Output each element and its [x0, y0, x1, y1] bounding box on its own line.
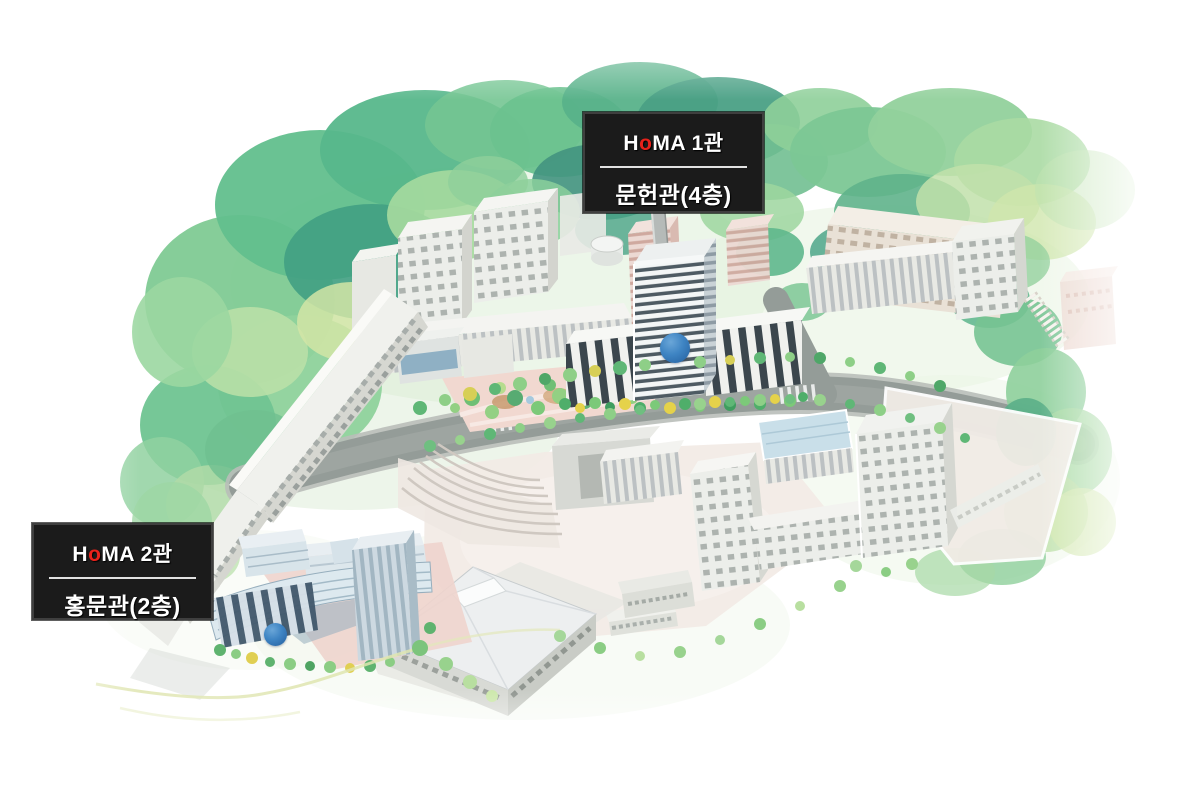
- homa1-location-marker[interactable]: [660, 333, 690, 363]
- label-divider: [49, 577, 196, 579]
- brand-pre: H: [623, 132, 639, 155]
- building-complex-right: [806, 206, 1028, 320]
- homa1-label[interactable]: HoMA 1관 문헌관(4층): [583, 112, 764, 213]
- homa2-label[interactable]: HoMA 2관 홍문관(2층): [32, 523, 213, 620]
- brand-accent: o: [639, 132, 652, 155]
- homa2-building-name: 홍문관(2층): [34, 587, 211, 621]
- brand-post: MA 1관: [652, 132, 723, 155]
- water-tank: [591, 236, 623, 266]
- homa1-building-name: 문헌관(4층): [585, 176, 762, 210]
- homa2-title: HoMA 2관: [34, 525, 211, 568]
- campus-map-page: HoMA 1관 문헌관(4층) HoMA 2관 홍문관(2층): [0, 0, 1200, 800]
- brand-post: MA 2관: [101, 543, 172, 566]
- brand-accent: o: [88, 543, 101, 566]
- homa2-location-marker[interactable]: [264, 623, 287, 646]
- brand-pre: H: [72, 543, 88, 566]
- label-divider: [600, 166, 747, 168]
- homa1-title: HoMA 1관: [585, 114, 762, 157]
